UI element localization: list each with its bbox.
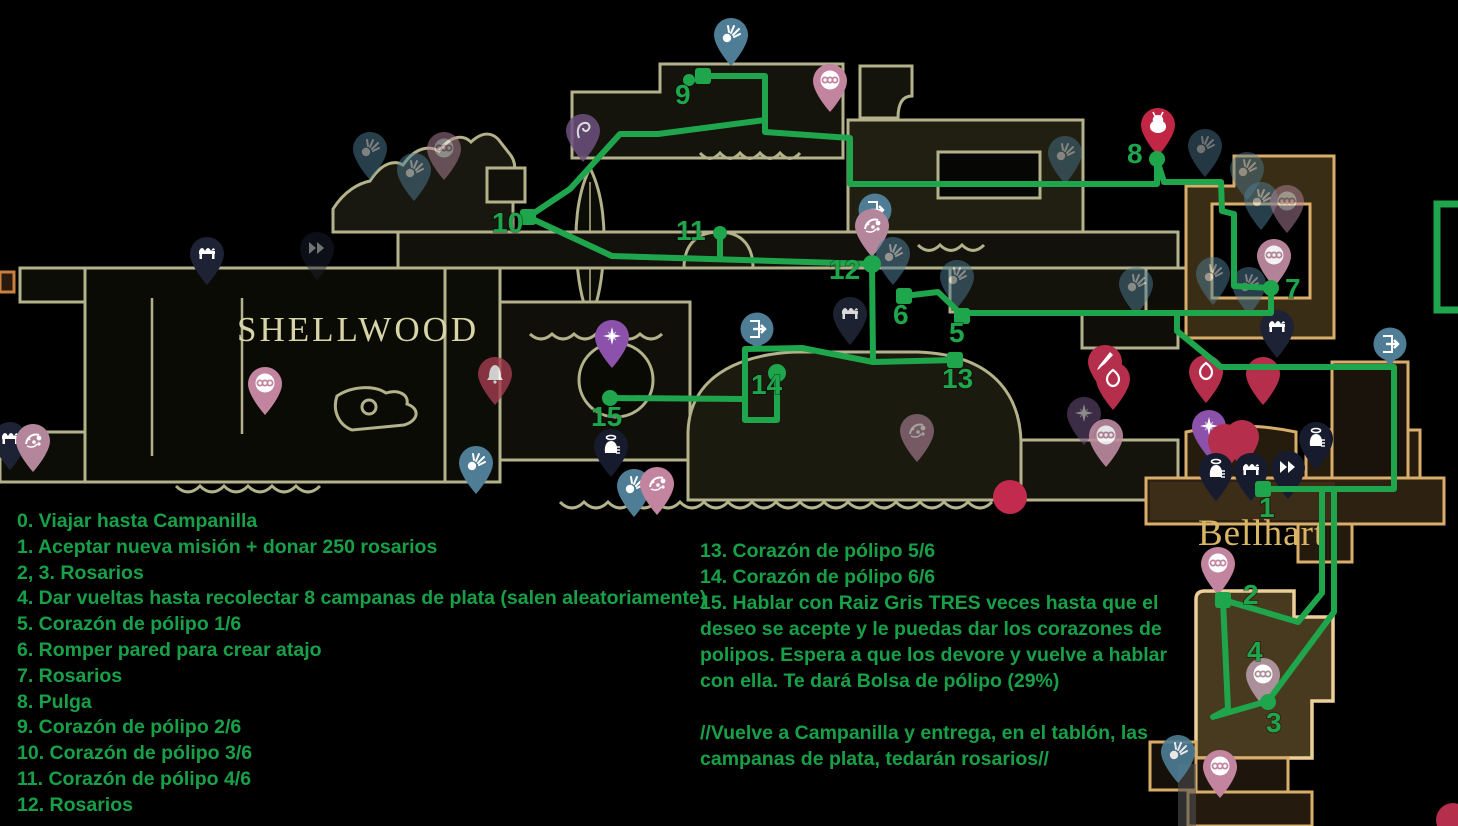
route-node — [1263, 280, 1279, 296]
guide-step: 11. Corazón de pólipo 4/6 — [17, 767, 706, 793]
map-guide-screenshot: SHELLWOOD Bellhart 123456789101112131415… — [0, 0, 1458, 826]
route-step-number: 7 — [1285, 273, 1301, 304]
route-node — [695, 68, 711, 84]
guide-step: 8. Pulga — [17, 690, 706, 716]
guide-note-line: campanas de plata, tedarán rosarios// — [700, 746, 1170, 772]
route-line — [962, 288, 1271, 315]
route-step-number: 9 — [675, 79, 691, 110]
guide-step: 10. Corazón de pólipo 3/6 — [17, 741, 706, 767]
guide-steps-list: 0. Viajar hasta Campanilla1. Aceptar nue… — [17, 509, 706, 819]
guide-note-line: //Vuelve a Campanilla y entrega, en el t… — [700, 720, 1170, 746]
route-step-number: 6 — [893, 299, 909, 330]
route-node — [713, 226, 727, 240]
route-step-number: 12 — [829, 254, 860, 285]
guide-note-line — [700, 694, 1170, 720]
route-step-number: 2 — [1243, 579, 1259, 610]
guide-step: 7. Rosarios — [17, 664, 706, 690]
guide-step: 4. Dar vueltas hasta recolectar 8 campan… — [17, 586, 706, 612]
route-step-number: 4 — [1247, 636, 1263, 667]
guide-step: 12. Rosarios — [17, 793, 706, 819]
route-line — [610, 398, 745, 399]
route-node — [1215, 592, 1231, 608]
route-line — [904, 292, 962, 315]
route-step-number: 3 — [1266, 707, 1282, 738]
guide-step: 1. Aceptar nueva misión + donar 250 rosa… — [17, 535, 706, 561]
guide-step: 9. Corazón de pólipo 2/6 — [17, 715, 706, 741]
route-step-number: 5 — [949, 317, 965, 348]
route-step-number: 14 — [751, 369, 783, 400]
route-step-number: 13 — [942, 363, 973, 394]
route-highlight-rect — [1437, 204, 1458, 310]
route-line — [1157, 160, 1271, 288]
guide-step: 2, 3. Rosarios — [17, 561, 706, 587]
route-step-number: 10 — [492, 207, 523, 238]
route-step-number: 1 — [1259, 492, 1275, 523]
guide-note-line: con ella. Te dará Bolsa de pólipo (29%) — [700, 668, 1170, 694]
guide-note-line: 13. Corazón de pólipo 5/6 — [700, 538, 1170, 564]
route-step-number: 11 — [676, 215, 706, 246]
guide-note-line: deseo se acepte y le puedas dar los cora… — [700, 616, 1170, 642]
route-line — [1213, 601, 1228, 717]
guide-note-line: 15. Hablar con Raiz Gris TRES veces hast… — [700, 590, 1170, 616]
guide-note-line: 14. Corazón de pólipo 6/6 — [700, 564, 1170, 590]
route-line — [528, 120, 765, 217]
route-line — [1177, 313, 1394, 489]
guide-note-line: polipos. Espera a que los devore y vuelv… — [700, 642, 1170, 668]
route-line — [872, 264, 955, 362]
guide-step: 6. Romper pared para crear atajo — [17, 638, 706, 664]
guide-step: 5. Corazón de pólipo 1/6 — [17, 612, 706, 638]
route-node — [863, 255, 881, 273]
guide-notes-block: 13. Corazón de pólipo 5/614. Corazón de … — [700, 538, 1170, 772]
route-line — [703, 76, 1157, 184]
route-step-number: 15 — [591, 401, 622, 432]
route-step-number: 8 — [1127, 138, 1143, 169]
guide-step: 0. Viajar hasta Campanilla — [17, 509, 706, 535]
route-node — [1149, 151, 1165, 167]
